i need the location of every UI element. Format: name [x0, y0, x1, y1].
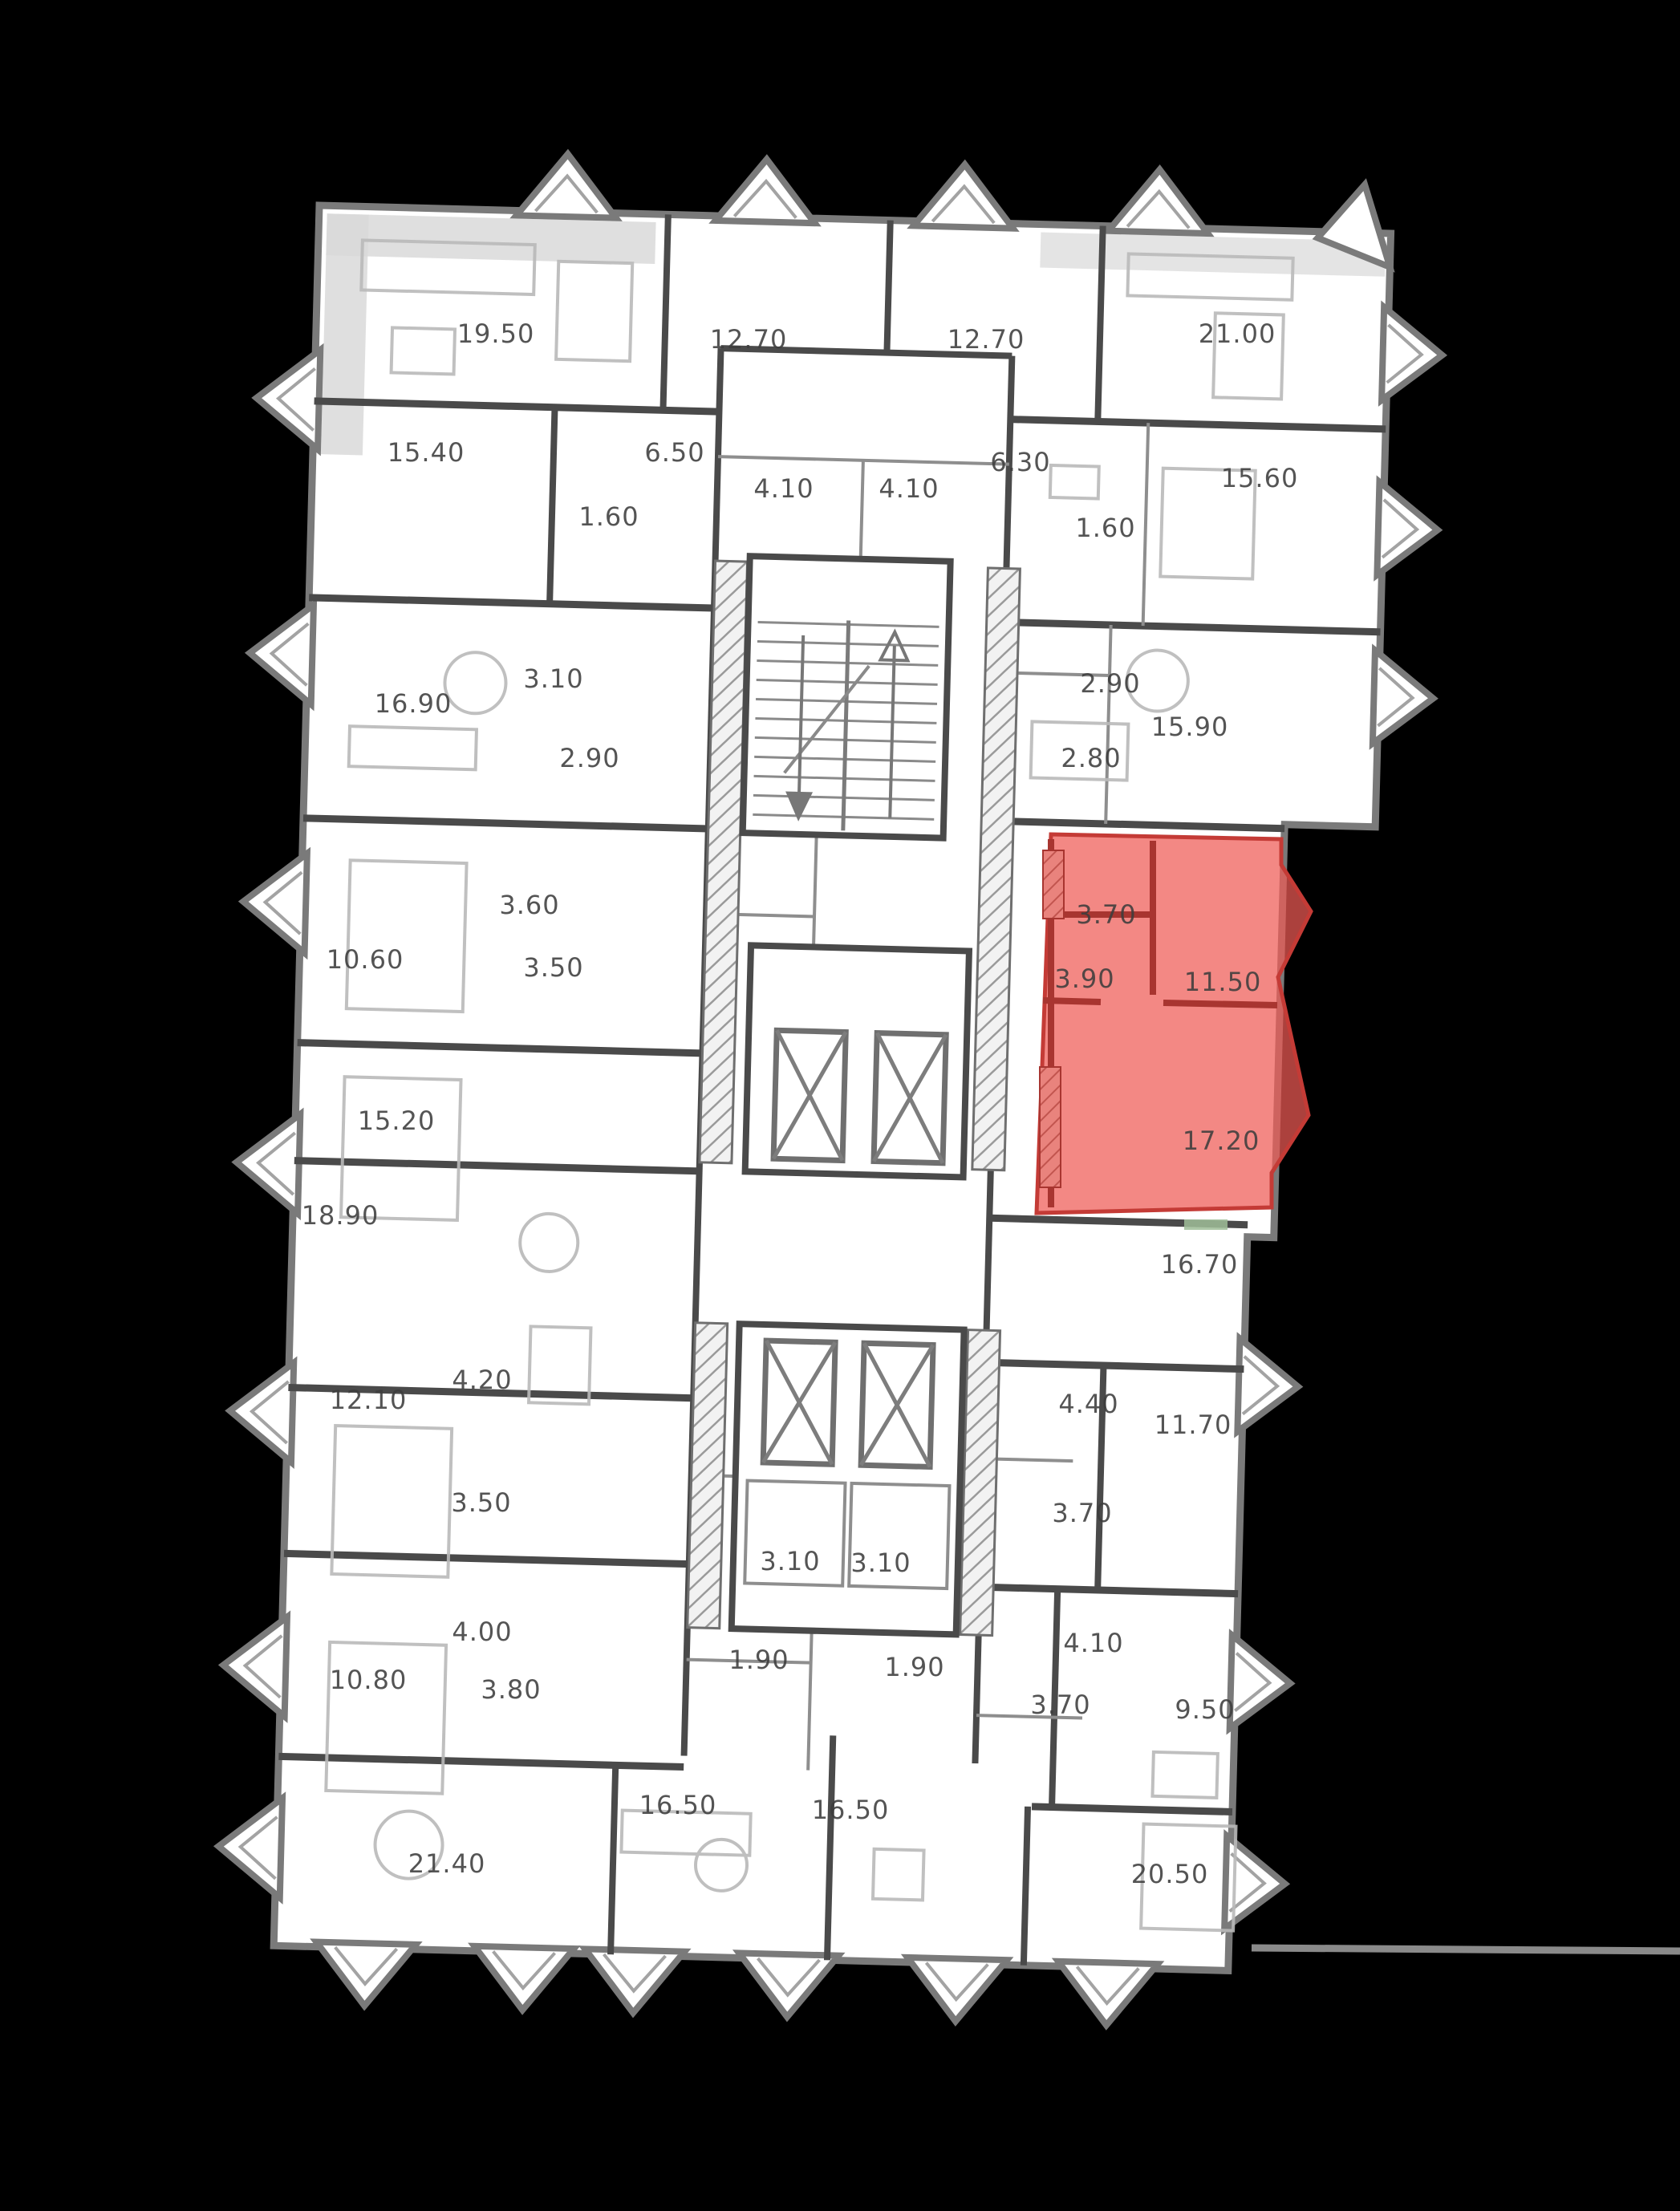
room-area-label: 16.70 [1161, 1249, 1239, 1280]
room-area-label: 3.70 [1052, 1498, 1112, 1528]
room-area-label: 15.60 [1221, 463, 1299, 493]
bay-window [517, 152, 618, 217]
elevator-bank-upper [745, 945, 969, 1177]
floor-plan-canvas: 19.5012.7012.7021.0015.406.504.104.106.3… [0, 0, 1680, 2211]
room-area-label: 3.80 [481, 1674, 541, 1705]
room-area-label: 6.30 [990, 447, 1050, 477]
room-area-label: 1.60 [1075, 513, 1135, 543]
balcony-rail-green [1184, 1219, 1228, 1230]
room-area-label: 4.20 [452, 1365, 512, 1395]
room-area-label: 15.40 [388, 437, 465, 468]
room-area-label: 21.00 [1199, 318, 1276, 349]
hatched-wall [688, 1323, 728, 1629]
bay-window [716, 158, 817, 223]
highlight-area-label: 3.70 [1076, 899, 1136, 930]
baseline-line [1252, 1948, 1680, 1951]
room-area-label: 3.60 [499, 890, 559, 920]
room-area-label: 4.10 [879, 473, 939, 504]
highlight-hatched-wall [1040, 1067, 1061, 1187]
room-area-label: 1.60 [578, 501, 639, 532]
stairwell [743, 556, 951, 838]
room-area-label: 4.00 [452, 1617, 512, 1647]
room-area-label: 4.10 [753, 473, 814, 504]
hatched-wall [960, 1330, 1000, 1636]
wall [1024, 1807, 1028, 1966]
highlight-wall [1163, 1003, 1277, 1005]
bay-window [1382, 307, 1443, 402]
room-area-label: 9.50 [1175, 1694, 1235, 1725]
balcony-band [326, 213, 655, 264]
bay-window [473, 1946, 574, 2011]
floor-plan-screenshot: 19.5012.7012.7021.0015.406.504.104.106.3… [0, 0, 1680, 2211]
room-area-label: 16.50 [639, 1790, 717, 1820]
bay-window [229, 1361, 294, 1463]
room-area-label: 3.70 [1030, 1690, 1090, 1720]
highlight-area-label: 3.90 [1054, 964, 1114, 994]
room-area-label: 18.90 [302, 1200, 379, 1231]
room-area-label: 4.10 [1063, 1628, 1123, 1658]
bay-window [1237, 1339, 1299, 1434]
room-area-label: 10.80 [330, 1665, 408, 1695]
room-area-label: 11.70 [1154, 1410, 1232, 1440]
room-area-label: 12.70 [710, 324, 788, 355]
room-area-label: 20.50 [1131, 1859, 1209, 1889]
bay-window [222, 1616, 287, 1717]
highlight-area-label: 11.50 [1184, 967, 1262, 997]
room-area-label: 19.50 [457, 318, 535, 349]
room-area-label: 16.90 [375, 688, 452, 719]
bay-window [1373, 651, 1434, 745]
bay-window [249, 603, 314, 704]
room-area-label: 15.90 [1151, 712, 1229, 742]
room-area-label: 16.50 [812, 1795, 890, 1825]
highlight-area-label: 17.20 [1183, 1126, 1260, 1156]
bay-window [737, 1953, 838, 2018]
bay-window [1377, 482, 1439, 577]
room-area-label: 3.10 [760, 1546, 820, 1576]
bay-window [1109, 168, 1210, 233]
bay-window [242, 852, 307, 953]
bay-window [255, 348, 320, 449]
bay-window [217, 1796, 282, 1897]
highlight-hatched-wall [1043, 850, 1064, 919]
room-area-label: 12.70 [948, 324, 1025, 355]
bay-window [906, 1957, 1007, 2022]
room-area-label: 12.10 [330, 1385, 408, 1415]
bay-window [314, 1942, 416, 2007]
room-area-label: 3.50 [451, 1487, 511, 1518]
bay-window [235, 1113, 300, 1214]
room-area-label: 2.90 [559, 743, 619, 773]
room-area-label: 1.90 [728, 1645, 789, 1675]
room-area-label: 1.90 [884, 1652, 944, 1682]
room-area-label: 3.50 [523, 952, 583, 983]
wall [887, 221, 890, 353]
bay-window [583, 1949, 684, 2014]
room-area-label: 2.80 [1061, 743, 1121, 773]
room-area-label: 4.40 [1058, 1389, 1118, 1419]
elevator-bank-lower [732, 1324, 964, 1634]
bay-window [914, 163, 1015, 228]
room-area-label: 3.10 [523, 663, 583, 694]
bay-window [1057, 1962, 1158, 2026]
room-area-label: 3.10 [850, 1548, 911, 1578]
room-area-label: 10.60 [327, 944, 404, 975]
room-area-label: 21.40 [408, 1848, 486, 1879]
room-area-label: 6.50 [644, 437, 704, 468]
bay-window [1230, 1635, 1292, 1730]
room-area-label: 2.90 [1080, 668, 1140, 699]
room-area-label: 15.20 [358, 1105, 436, 1136]
highlighted-apartment[interactable] [1037, 834, 1311, 1213]
